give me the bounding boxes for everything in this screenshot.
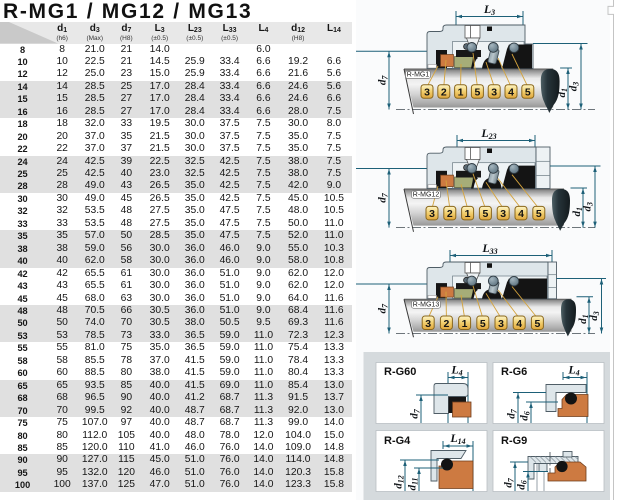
svg-text:5: 5 xyxy=(480,318,486,330)
svg-text:2: 2 xyxy=(447,208,453,220)
svg-text:R-MG12: R-MG12 xyxy=(413,192,440,199)
svg-text:R-G6: R-G6 xyxy=(501,366,527,378)
svg-text:2: 2 xyxy=(441,87,447,99)
svg-text:3: 3 xyxy=(500,208,506,220)
svg-text:R-G9: R-G9 xyxy=(501,435,527,447)
svg-text:4: 4 xyxy=(518,208,524,220)
svg-text:3: 3 xyxy=(425,318,431,330)
svg-text:5: 5 xyxy=(474,87,480,99)
svg-text:R-MG13: R-MG13 xyxy=(413,302,440,309)
svg-text:1: 1 xyxy=(458,87,464,99)
svg-text:4: 4 xyxy=(508,87,514,99)
svg-text:R-G60: R-G60 xyxy=(384,366,416,378)
svg-text:1: 1 xyxy=(465,208,471,220)
svg-text:5: 5 xyxy=(482,208,488,220)
svg-text:3: 3 xyxy=(424,87,430,99)
svg-text:R-G4: R-G4 xyxy=(384,435,411,447)
svg-text:1: 1 xyxy=(462,318,468,330)
svg-text:5: 5 xyxy=(525,87,531,99)
svg-text:3: 3 xyxy=(498,318,504,330)
svg-text:3: 3 xyxy=(491,87,497,99)
svg-text:5: 5 xyxy=(536,208,542,220)
svg-text:2: 2 xyxy=(443,318,449,330)
svg-text:3: 3 xyxy=(429,208,435,220)
svg-text:4: 4 xyxy=(516,318,522,330)
svg-text:5: 5 xyxy=(534,318,540,330)
svg-text:R-MG1: R-MG1 xyxy=(407,72,430,79)
